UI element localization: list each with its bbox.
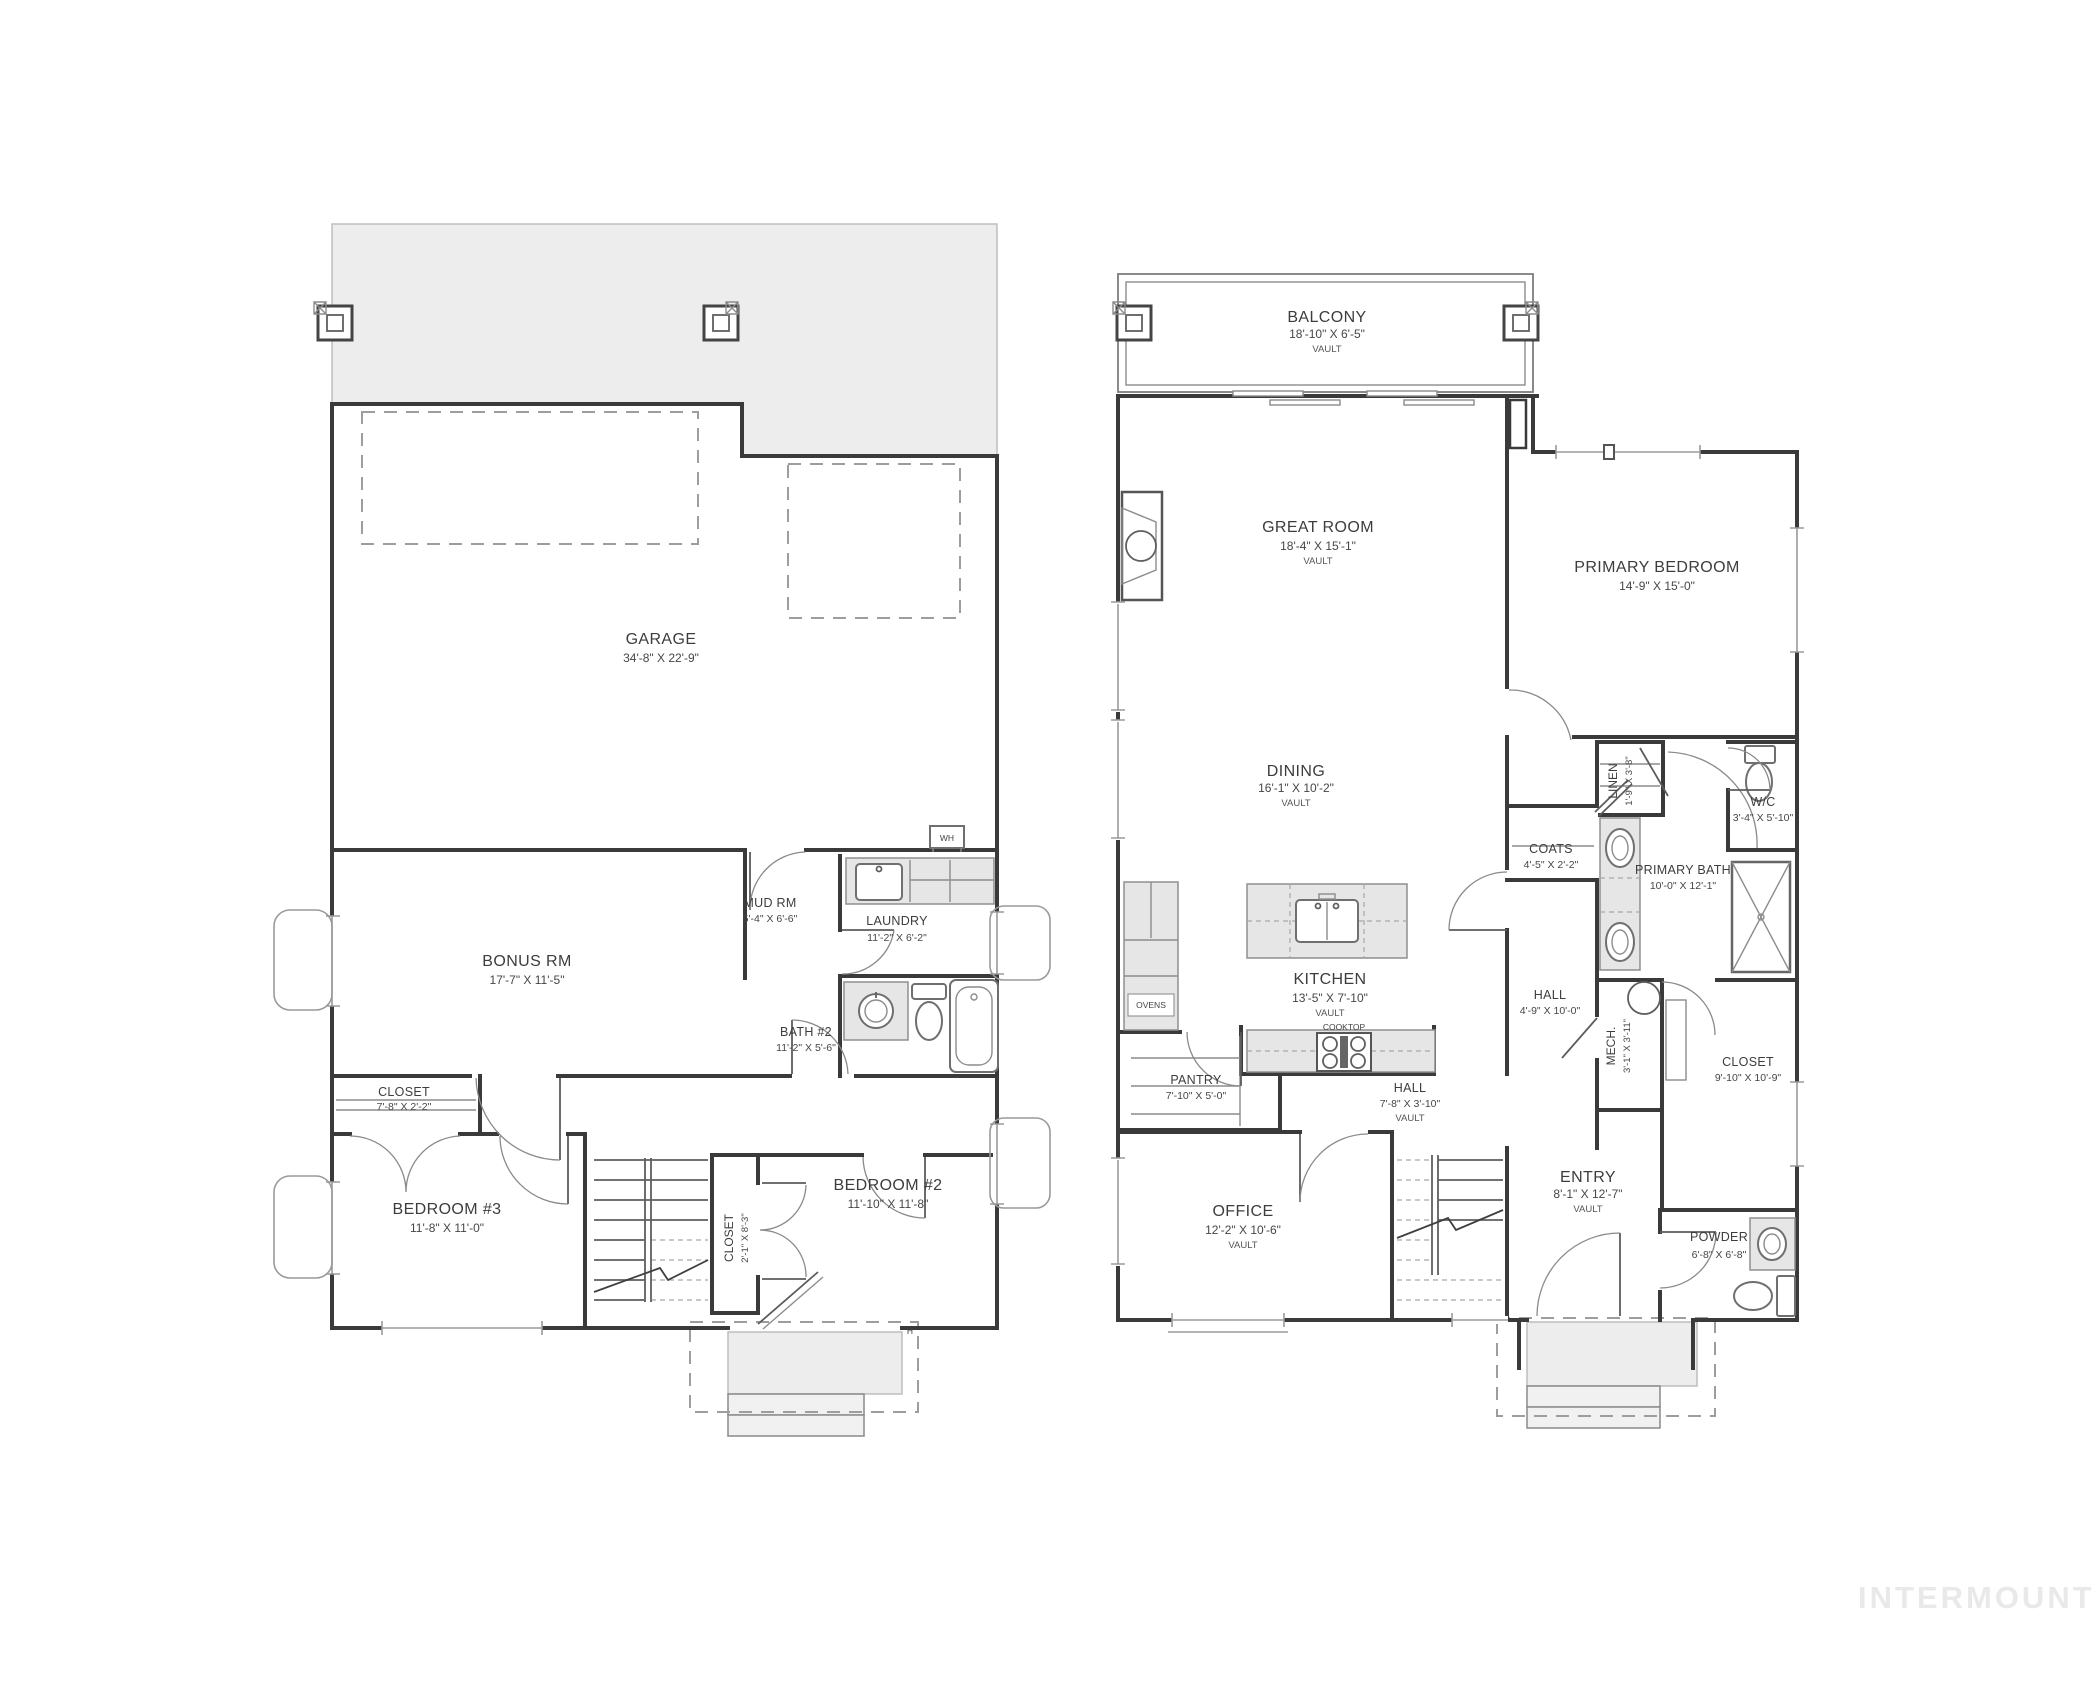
office-label: OFFICE [1212, 1203, 1273, 1220]
second-floor-plan: BALCONY 18'-10" X 6'-5" VAULT GREAT ROOM… [1111, 274, 1804, 1428]
great-room-dims: 18'-4" X 15'-1" [1280, 539, 1356, 553]
office-dims: 12'-2" X 10'-6" [1205, 1223, 1281, 1237]
primary-bedroom-label: PRIMARY BEDROOM [1574, 559, 1739, 576]
walls-floor2 [1118, 396, 1797, 1320]
entry-label: ENTRY [1560, 1169, 1616, 1186]
mech-dims: 3'-1" X 3'-11" [1622, 1019, 1633, 1073]
garage-label: GARAGE [626, 631, 697, 648]
kitchen-dims: 13'-5" X 7'-10" [1292, 991, 1368, 1005]
office-note: VAULT [1228, 1240, 1257, 1251]
great-room-label: GREAT ROOM [1262, 519, 1374, 536]
dining-label: DINING [1267, 763, 1325, 780]
dining-note: VAULT [1281, 798, 1310, 809]
laundry-label: LAUNDRY [866, 914, 928, 928]
dining-dims: 16'-1" X 10'-2" [1258, 781, 1334, 795]
garage-dims: 34'-8" X 22'-9" [623, 651, 699, 665]
vanity-sink-1 [1606, 829, 1634, 867]
primary-bath-label: PRIMARY BATH [1635, 863, 1731, 877]
balcony-dims: 18'-10" X 6'-5" [1289, 327, 1365, 341]
laundry-dims: 11'-2" X 6'-2" [867, 932, 927, 944]
bedroom3-label: BEDROOM #3 [393, 1201, 502, 1218]
powder-dims: 6'-8" X 6'-8" [1692, 1249, 1747, 1261]
balcony-post-left [1113, 302, 1151, 340]
pantry-label: PANTRY [1170, 1073, 1222, 1087]
bath2-dims: 11'-2" X 5'-6" [776, 1042, 836, 1054]
powder-sink [1758, 1228, 1786, 1260]
bonus-label: BONUS RM [482, 953, 571, 970]
cooktop-label: COOKTOP [1323, 1022, 1366, 1032]
bedroom3-dims: 11'-8" X 11'-0" [410, 1221, 484, 1235]
balcony-post-right [1504, 302, 1538, 340]
closet-b2-dims: 2'-1" X 8'-3" [740, 1213, 751, 1262]
porch-1 [728, 1332, 902, 1394]
floorplan-drawing: GARAGE 34'-8" X 22'-9" BONUS RM 17'-7" X… [0, 0, 2091, 1705]
powder-toilet [1734, 1282, 1772, 1310]
windows-floor2 [1111, 391, 1804, 1332]
bedroom2-label: BEDROOM #2 [834, 1177, 943, 1194]
closet-primary-label: CLOSET [1722, 1055, 1774, 1069]
primary-bedroom-dims: 14'-9" X 15'-0" [1619, 579, 1695, 593]
porch-2 [1527, 1322, 1697, 1386]
balcony-note: VAULT [1312, 344, 1341, 355]
mech-water-heater [1628, 982, 1660, 1014]
bath2-toilet-tank [912, 984, 946, 999]
balcony-label: BALCONY [1287, 309, 1366, 326]
closet-primary-dims: 9'-10" X 10'-9" [1715, 1072, 1782, 1084]
bath2-sink [859, 994, 893, 1028]
hall-upper-dims: 4'-9" X 10'-0" [1520, 1005, 1581, 1017]
wc-dims: 3'-4" X 5'-10" [1733, 812, 1794, 824]
laundry-sink [856, 864, 902, 900]
closet-b2-label: CLOSET [722, 1213, 736, 1262]
primary-bath-fixtures [1512, 746, 1790, 1080]
bedroom2-dims: 11'-10" X 11'-8" [848, 1197, 929, 1211]
linen-dims: 1'-9" X 3'-8" [1624, 756, 1635, 805]
great-room-note: VAULT [1303, 556, 1332, 567]
coats-dims: 4'-5" X 2'-2" [1524, 859, 1579, 871]
entry-note: VAULT [1573, 1204, 1602, 1215]
hall-lower-dims: 7'-8" X 3'-10" [1380, 1098, 1441, 1110]
watermark: INTERMOUNTAIN [1858, 1580, 2091, 1615]
hall-lower-note: VAULT [1395, 1113, 1424, 1124]
vanity-sink-2 [1606, 923, 1634, 961]
porch-1-step2 [728, 1415, 864, 1436]
wc-label: W/C [1750, 795, 1775, 809]
bath2-toilet [916, 1002, 942, 1040]
porch-2-step2 [1527, 1407, 1660, 1428]
hall-lower-label: HALL [1394, 1081, 1426, 1095]
porch-2-step1 [1527, 1386, 1660, 1407]
kitchen-label: KITCHEN [1293, 971, 1366, 988]
mech-label: MECH. [1604, 1027, 1618, 1066]
stairs-floor1 [594, 1158, 708, 1302]
primary-bath-dims: 10'-0" X 12'-1" [1650, 880, 1717, 892]
closet-b3-dims: 7'-8" X 2'-2" [377, 1101, 432, 1113]
bonus-dims: 17'-7" X 11'-5" [490, 973, 565, 987]
bath2-label: BATH #2 [780, 1025, 832, 1039]
kitchen-note: VAULT [1315, 1008, 1344, 1019]
pantry-dims: 7'-10" X 5'-0" [1166, 1090, 1227, 1102]
garage-covered-patio [332, 224, 997, 456]
mud-dims: 5'-4" X 6'-6" [743, 913, 798, 925]
entry-dims: 8'-1" X 12'-7" [1553, 1187, 1622, 1201]
mud-label: MUD RM [743, 896, 796, 910]
floorplan-page: GARAGE 34'-8" X 22'-9" BONUS RM 17'-7" X… [0, 0, 2091, 1705]
fireplace [1122, 492, 1162, 600]
first-floor-plan: GARAGE 34'-8" X 22'-9" BONUS RM 17'-7" X… [274, 224, 1050, 1436]
patio-post-right [704, 302, 738, 340]
powder-label: POWDER [1690, 1230, 1748, 1244]
hall-upper-label: HALL [1534, 988, 1566, 1002]
coats-label: COATS [1529, 842, 1573, 856]
patio-post-left [314, 302, 352, 340]
closet-b3-label: CLOSET [378, 1085, 430, 1099]
laundry-counter [846, 858, 994, 904]
ovens-label: OVENS [1136, 1000, 1166, 1010]
linen-label: LINEN [1606, 763, 1620, 798]
hose-marker: H [907, 1326, 913, 1336]
closet-shelving [1666, 1000, 1686, 1080]
powder-toilet-tank [1777, 1276, 1795, 1316]
wh-label: WH [940, 833, 954, 843]
stairs-floor2 [1397, 1155, 1503, 1300]
bath2-fixtures [844, 980, 998, 1072]
